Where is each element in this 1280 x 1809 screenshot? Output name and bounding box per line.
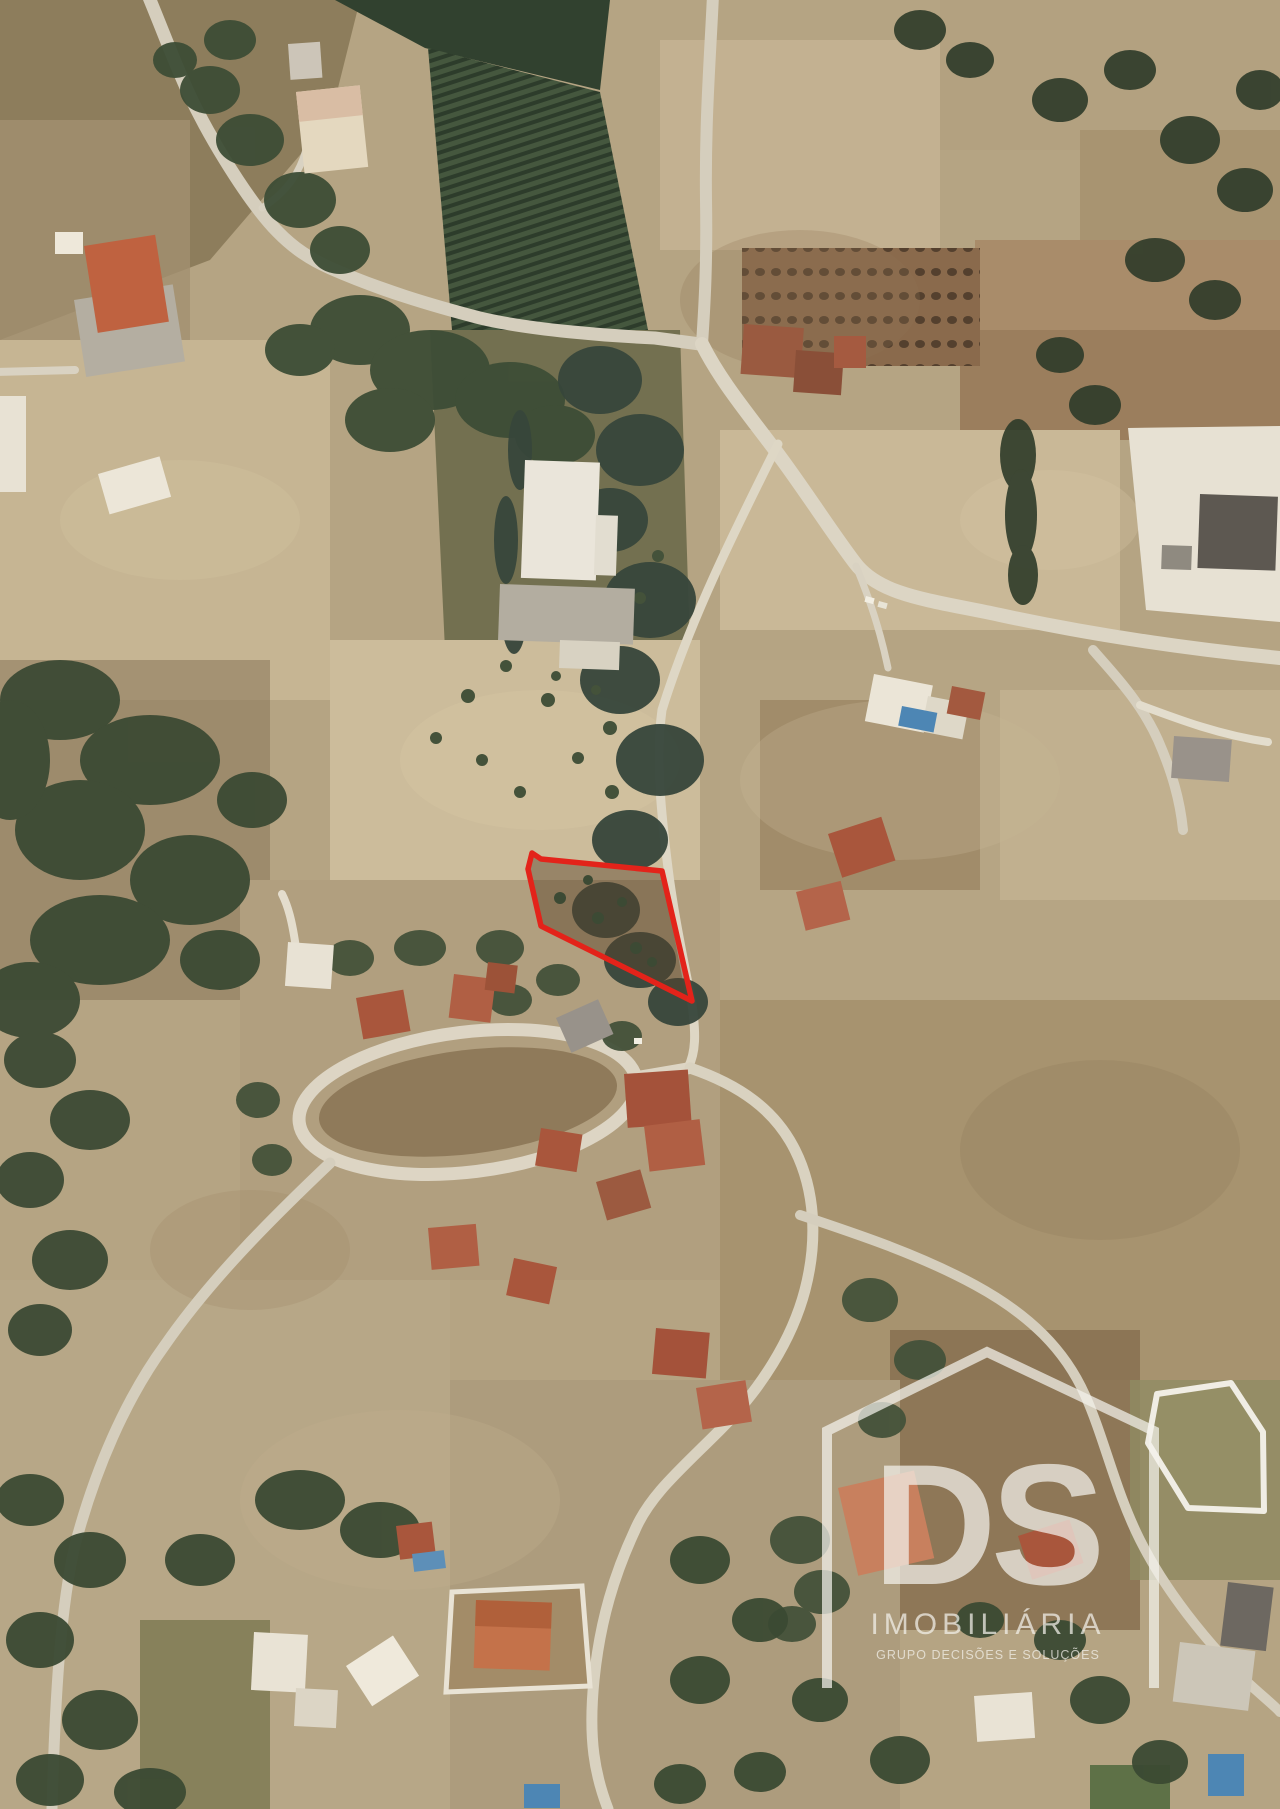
- logo-brand: IMOBILIÁRIA: [870, 1608, 1105, 1641]
- logo-tagline: GRUPO DECISÕES E SOLUÇÕES: [876, 1647, 1100, 1662]
- aerial-photo-svg: DS IMOBILIÁRIA GRUPO DECISÕES E SOLUÇÕES: [0, 0, 1280, 1809]
- logo-initials: DS: [873, 1429, 1100, 1621]
- aerial-photo: DS IMOBILIÁRIA GRUPO DECISÕES E SOLUÇÕES: [0, 0, 1280, 1809]
- road-west-stub: [0, 370, 75, 372]
